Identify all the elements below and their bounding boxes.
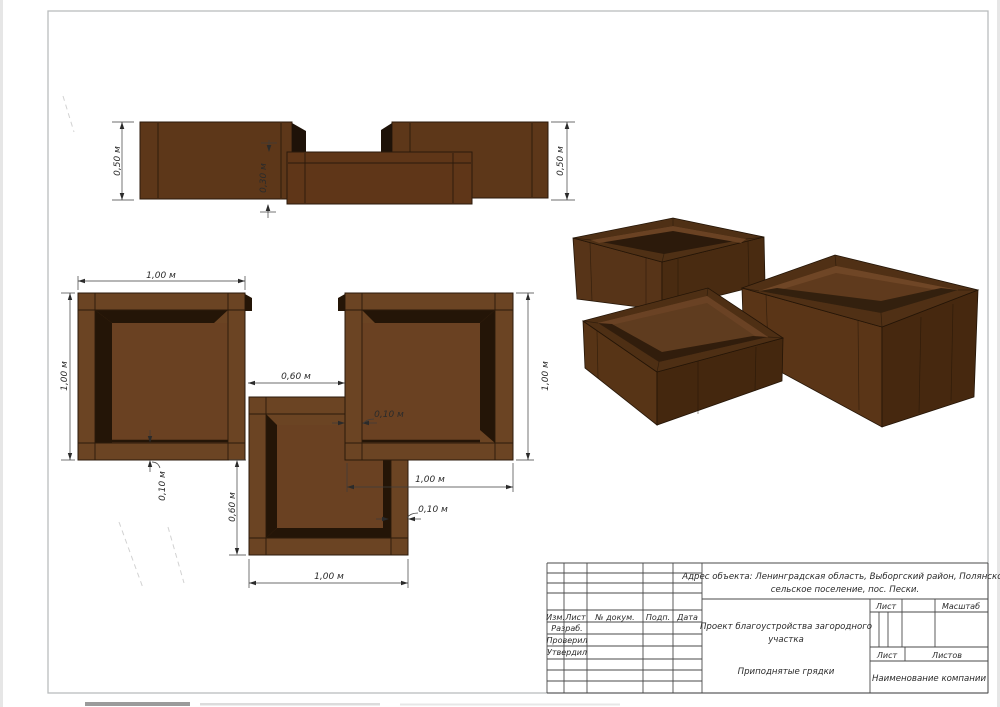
plan-view: 1,00 м 1,00 м 0,60 м 1,00 м — [60, 271, 551, 588]
dim-plan-gap-label: 0,60 м — [281, 372, 311, 382]
plan-left-box — [78, 293, 252, 460]
elevation-middle-box — [287, 152, 472, 204]
scale-label: Масштаб — [942, 602, 980, 611]
address-line2: сельское поселение, пос. Пески. — [771, 585, 919, 595]
dim-plan-right-width-label: 1,00 м — [415, 475, 445, 485]
company-name: Наименование компании — [872, 674, 987, 684]
project-line2: участка — [767, 635, 804, 645]
dim-plan-middle-offset: 0,60 м — [228, 460, 246, 555]
iso-back-left-box — [573, 218, 765, 310]
project-line1: Проект благоустройства загородного — [700, 622, 872, 632]
col-podp: Подп. — [646, 613, 670, 622]
dim-plan-left-depth-label: 1,00 м — [60, 361, 70, 391]
dim-plan-right-depth-label: 1,00 м — [541, 361, 551, 391]
col-doc: № докум. — [594, 613, 634, 622]
drawing-sheet: 0,50 м 0,50 м 0,30 м — [0, 0, 1000, 707]
address-line1: Адрес объекта: Ленинградская область, Вы… — [681, 572, 1000, 582]
dim-plan-top-width-label: 1,00 м — [146, 271, 176, 281]
col-izm: Изм. — [546, 613, 565, 622]
bottom-artifact-bar — [85, 702, 190, 706]
dim-plan-left-depth: 1,00 м — [60, 293, 75, 460]
dim-elevation-right-height: 0,50 м — [556, 146, 566, 176]
elevation-left-box — [140, 122, 306, 199]
sheet-label2: Лист — [876, 651, 898, 660]
dim-plan-bottom-width: 1,00 м — [249, 559, 408, 588]
dim-elevation-left-height: 0,50 м — [113, 146, 123, 176]
row-utverdil: Утвердил — [547, 648, 587, 657]
dim-wall-right-label: 0,10 м — [374, 410, 404, 420]
dim-plan-gap: 0,60 м — [248, 372, 345, 385]
drawing-canvas: 0,50 м 0,50 м 0,30 м — [0, 0, 1000, 707]
sheet-label: Лист — [875, 602, 897, 611]
dim-plan-bottom-width-label: 1,00 м — [314, 572, 344, 582]
dim-wall-middle-label: 0,10 м — [418, 505, 448, 515]
dim-wall-left-label: 0,10 м — [158, 471, 168, 501]
title-block: Адрес объекта: Ленинградская область, Вы… — [546, 563, 1000, 693]
dim-elevation-middle-height: 0,30 м — [259, 163, 269, 193]
iso-view — [573, 218, 978, 427]
dim-elevation-left: 0,50 м — [112, 122, 134, 200]
dim-elevation-right: 0,50 м — [551, 122, 575, 200]
col-data: Дата — [676, 613, 698, 622]
dim-plan-right-depth: 1,00 м — [516, 293, 551, 460]
plan-right-box — [338, 293, 513, 460]
dim-plan-top-width: 1,00 м — [78, 271, 245, 290]
dim-plan-middle-offset-label: 0,60 м — [228, 492, 238, 522]
row-razrab: Разраб. — [551, 624, 582, 633]
row-proveril: Проверил — [546, 636, 587, 645]
drawing-title: Приподнятые грядки — [738, 667, 835, 677]
elevation-view: 0,50 м 0,50 м 0,30 м — [112, 122, 575, 218]
col-list: Лист — [564, 613, 586, 622]
sheets-label: Листов — [931, 651, 962, 660]
